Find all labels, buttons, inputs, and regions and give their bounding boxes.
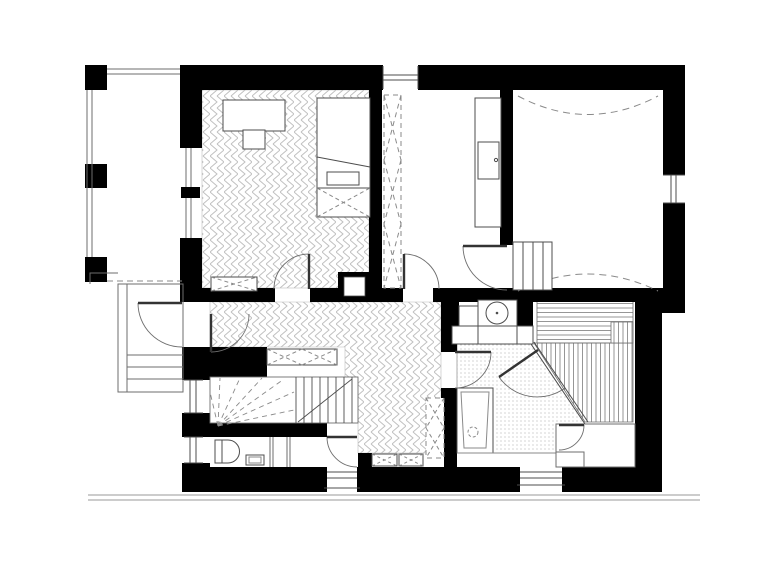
window-right — [663, 175, 685, 203]
top-wall-left — [180, 65, 383, 90]
study-attic-wall — [500, 90, 513, 245]
toilet — [215, 440, 240, 463]
left-wall-upper-a — [180, 90, 202, 148]
wardrobe-strip-upper — [384, 95, 401, 288]
stair-wc-wall — [210, 423, 327, 437]
bed-pillow — [327, 172, 359, 185]
bathtub — [457, 388, 493, 453]
hall-radiator-1 — [372, 454, 397, 466]
hall-radiator-2 — [399, 454, 423, 466]
study-cabinet — [478, 142, 499, 179]
attic-door — [463, 246, 507, 290]
headroom-curve-top — [518, 96, 658, 115]
top-wall-right — [418, 65, 685, 90]
bed — [317, 98, 370, 188]
wc-door — [327, 437, 357, 467]
window-alcove — [556, 424, 635, 467]
balcony-pillar-bottom — [85, 257, 107, 282]
mid-wall-b — [310, 288, 338, 302]
winder-staircase — [210, 377, 358, 426]
left-wall-upper-pier — [181, 187, 200, 198]
window-stair — [184, 380, 203, 413]
balcony-pillar-mid — [85, 164, 107, 188]
bottom-wall-b — [357, 467, 520, 492]
window-wc — [184, 437, 203, 463]
bed-chest — [317, 188, 370, 217]
bottom-wall-c — [562, 467, 662, 492]
floor-plan-canvas — [0, 0, 769, 567]
attic-room — [513, 96, 658, 291]
floor-plan-drawing — [0, 0, 769, 567]
desk — [223, 100, 285, 131]
balcony-pillar-top — [85, 65, 107, 90]
sauna-bench-corner-slats — [611, 322, 633, 343]
entry-door — [138, 303, 182, 347]
study-door — [404, 254, 439, 289]
wc-door-pier — [358, 453, 372, 467]
basin-pier-right — [517, 300, 533, 326]
bath-wardrobe-wall — [444, 410, 457, 467]
wc-partition — [270, 437, 290, 467]
hall-bench — [267, 349, 337, 365]
ground-lines — [88, 495, 700, 500]
right-wall-lower — [635, 313, 662, 492]
basin-pier-left — [441, 302, 459, 326]
balcony-glazing — [87, 69, 191, 257]
wardrobe-strip-lower — [426, 398, 444, 458]
bedroom-study-wall — [369, 90, 382, 302]
bath-counter — [452, 326, 533, 344]
left-wall-lower-a — [182, 347, 210, 380]
chimney-flue — [344, 277, 365, 296]
window-bottom-left — [324, 467, 360, 492]
bedroom-radiator — [211, 277, 257, 291]
washbasin — [478, 300, 517, 326]
bath-cabinet — [459, 306, 478, 326]
window-bottom-right — [517, 467, 565, 492]
mid-wall-c — [372, 288, 403, 302]
window-top — [383, 65, 418, 90]
entry-landing — [90, 273, 183, 392]
left-wall-lower-c — [182, 463, 210, 492]
desk-chair — [243, 130, 265, 149]
attic-steps — [513, 242, 552, 290]
study-room — [475, 98, 501, 227]
left-wall-lower-b — [182, 413, 210, 437]
wc-room — [215, 437, 290, 467]
